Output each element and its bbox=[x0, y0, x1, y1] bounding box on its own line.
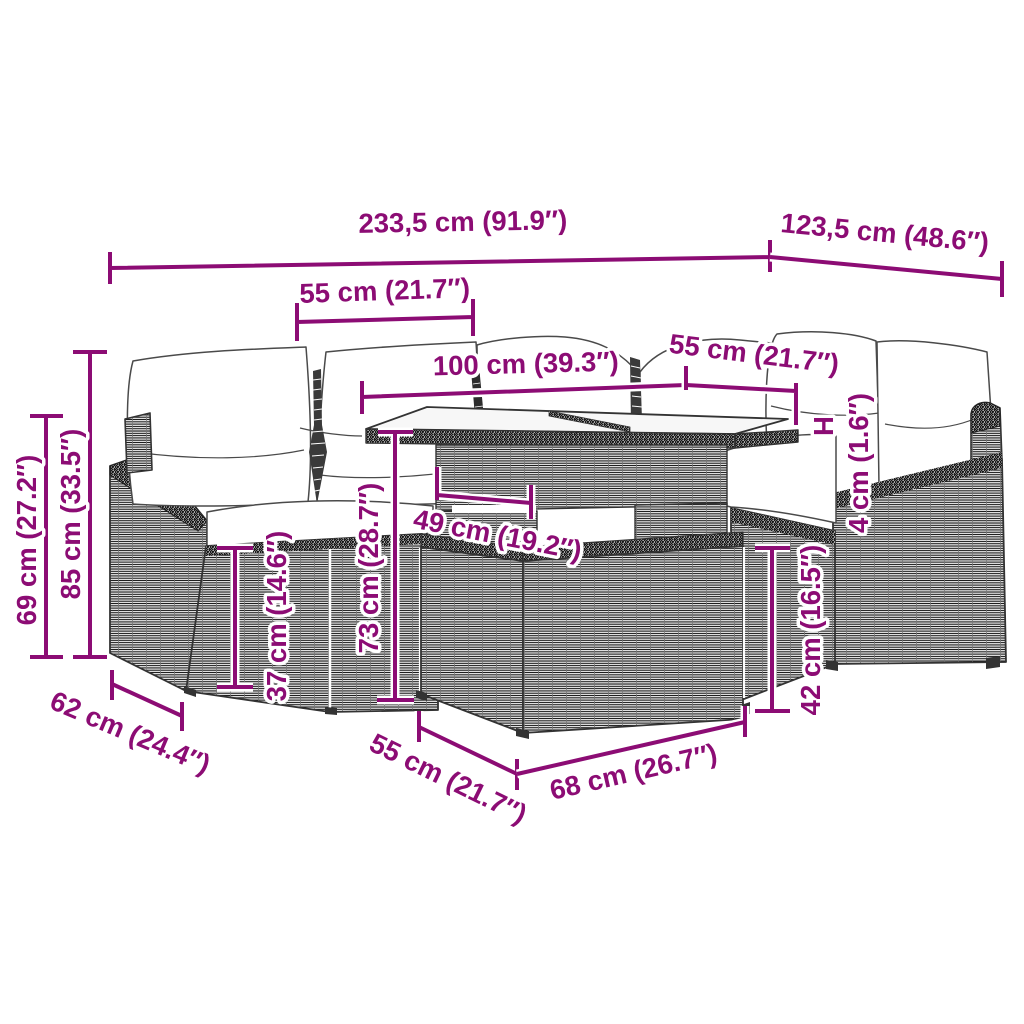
svg-text:42 cm (16.5″): 42 cm (16.5″) bbox=[795, 545, 826, 716]
svg-text:H: H bbox=[808, 416, 839, 436]
svg-text:73 cm (28.7″): 73 cm (28.7″) bbox=[353, 483, 384, 654]
svg-text:69 cm (27.2″): 69 cm (27.2″) bbox=[11, 455, 42, 626]
svg-text:100 cm (39.3″): 100 cm (39.3″) bbox=[432, 346, 619, 382]
svg-text:37 cm (14.6″): 37 cm (14.6″) bbox=[261, 531, 292, 702]
svg-text:85 cm (33.5″): 85 cm (33.5″) bbox=[55, 429, 86, 600]
svg-text:4 cm (1.6″): 4 cm (1.6″) bbox=[843, 393, 874, 533]
svg-text:55 cm (21.7″): 55 cm (21.7″) bbox=[299, 272, 471, 309]
svg-text:233,5 cm (91.9″): 233,5 cm (91.9″) bbox=[358, 204, 567, 239]
